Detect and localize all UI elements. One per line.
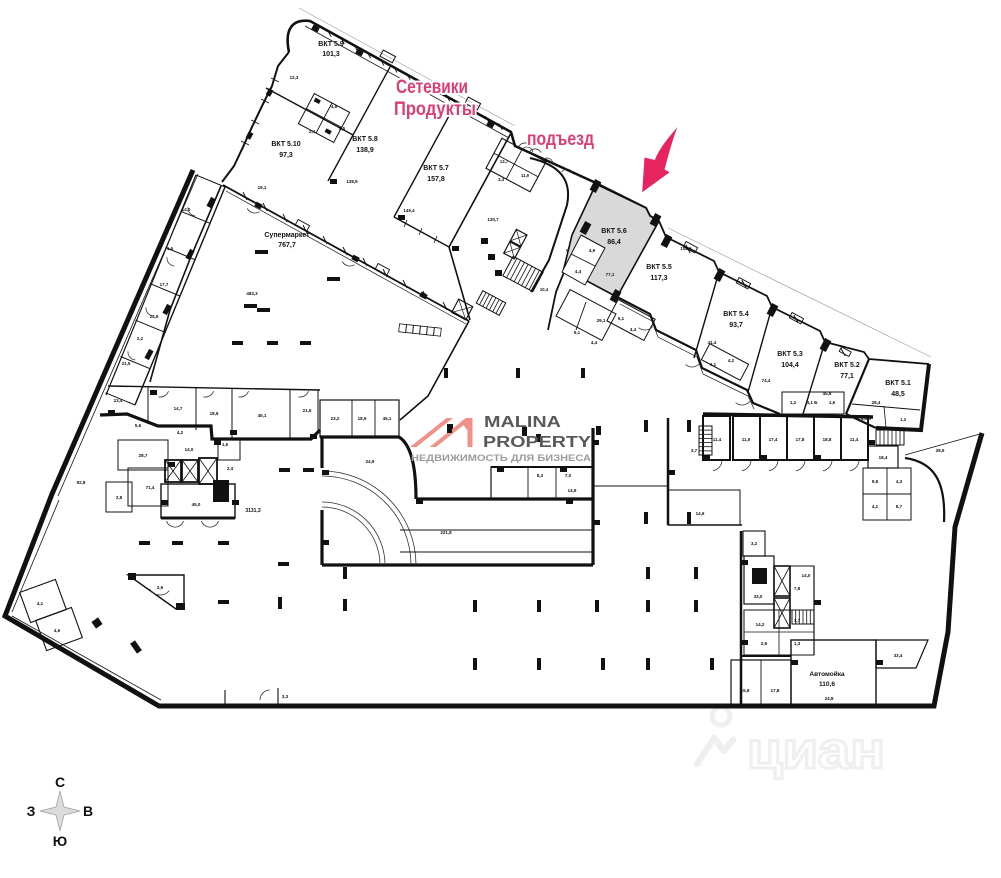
svg-text:97,3: 97,3: [279, 152, 293, 159]
svg-text:14,7: 14,7: [174, 406, 183, 411]
svg-text:17,7: 17,7: [160, 282, 169, 287]
svg-text:18,9: 18,9: [210, 411, 219, 416]
svg-text:18,4: 18,4: [879, 455, 888, 460]
svg-text:77,1: 77,1: [840, 373, 854, 380]
svg-text:33,4: 33,4: [894, 653, 903, 658]
svg-text:9,1: 9,1: [574, 330, 581, 335]
svg-text:221,8: 221,8: [440, 530, 452, 535]
svg-text:93,7: 93,7: [729, 322, 743, 329]
svg-text:5,1: 5,1: [618, 316, 625, 321]
svg-text:12,3: 12,3: [290, 75, 299, 80]
svg-text:23,4: 23,4: [114, 398, 123, 403]
svg-text:17,8: 17,8: [771, 688, 780, 693]
svg-text:11,4: 11,4: [850, 437, 859, 442]
svg-text:117,3: 117,3: [650, 275, 667, 282]
svg-text:3,7: 3,7: [691, 448, 698, 453]
svg-text:ВКТ 5.4: ВКТ 5.4: [723, 311, 749, 318]
svg-text:С: С: [55, 774, 65, 790]
svg-text:3,4: 3,4: [498, 177, 504, 182]
svg-text:138,9: 138,9: [356, 147, 374, 154]
svg-text:110,6: 110,6: [819, 681, 835, 688]
svg-text:4,1: 4,1: [37, 601, 44, 606]
svg-text:4,2: 4,2: [728, 358, 735, 363]
svg-text:21,5: 21,5: [122, 361, 131, 366]
svg-text:11,0: 11,0: [742, 437, 751, 442]
svg-text:2,9: 2,9: [157, 585, 164, 590]
svg-text:14,9: 14,9: [568, 488, 577, 493]
svg-text:ВКТ 5.9: ВКТ 5.9: [318, 41, 344, 48]
svg-text:92,8: 92,8: [77, 480, 86, 485]
svg-text:1,6: 1,6: [222, 442, 229, 447]
svg-text:8,3: 8,3: [537, 473, 544, 478]
svg-text:5,6: 5,6: [135, 423, 142, 428]
svg-text:4,5: 4,5: [339, 126, 346, 131]
svg-text:13,7: 13,7: [500, 159, 509, 164]
svg-text:З: З: [27, 803, 36, 819]
svg-text:29,1: 29,1: [597, 318, 606, 323]
svg-text:17,8: 17,8: [796, 437, 805, 442]
svg-text:45,0: 45,0: [192, 502, 201, 507]
svg-text:767,7: 767,7: [278, 242, 296, 249]
svg-text:28,7: 28,7: [139, 453, 148, 458]
svg-text:4,6: 4,6: [331, 104, 338, 109]
svg-text:28,4: 28,4: [872, 400, 881, 405]
svg-text:483,3: 483,3: [246, 291, 258, 296]
svg-text:4,9: 4,9: [589, 248, 596, 253]
svg-text:подъезд: подъезд: [527, 129, 594, 150]
svg-text:1,3: 1,3: [794, 641, 801, 646]
svg-text:ВКТ 5.10: ВКТ 5.10: [271, 141, 300, 148]
svg-text:циан: циан: [747, 722, 885, 780]
svg-text:Ю: Ю: [53, 833, 67, 849]
svg-text:4,6: 4,6: [54, 628, 61, 633]
svg-text:45,1: 45,1: [383, 416, 392, 421]
svg-text:74,4: 74,4: [762, 378, 771, 383]
svg-text:14,0: 14,0: [182, 207, 191, 212]
svg-text:18,9: 18,9: [358, 416, 367, 421]
svg-text:71,4: 71,4: [146, 485, 155, 490]
svg-text:157,8: 157,8: [427, 176, 445, 183]
svg-text:1,2: 1,2: [790, 400, 797, 405]
svg-text:4,4: 4,4: [591, 340, 598, 345]
svg-text:Сетевики: Сетевики: [396, 77, 468, 98]
svg-text:2,9: 2,9: [761, 641, 768, 646]
svg-text:11,4: 11,4: [713, 437, 722, 442]
svg-text:24,9: 24,9: [150, 314, 159, 319]
svg-text:ВКТ 5.6: ВКТ 5.6: [601, 228, 627, 235]
svg-text:MALINA: MALINA: [484, 414, 561, 431]
svg-text:3131,3: 3131,3: [245, 508, 261, 514]
svg-text:4,1 Б: 4,1 Б: [807, 400, 819, 405]
svg-text:Автомойка: Автомойка: [809, 670, 845, 678]
svg-text:24,9: 24,9: [825, 696, 834, 701]
svg-text:149,4: 149,4: [403, 208, 415, 213]
svg-text:14,0: 14,0: [185, 447, 194, 452]
svg-text:17,4: 17,4: [769, 437, 778, 442]
svg-text:86,4: 86,4: [607, 239, 621, 246]
svg-text:ВКТ 5.7: ВКТ 5.7: [423, 165, 449, 172]
svg-text:1,7: 1,7: [794, 618, 801, 623]
svg-text:1,3: 1,3: [900, 417, 906, 422]
svg-text:14,6: 14,6: [696, 511, 705, 516]
svg-text:24,9: 24,9: [366, 459, 375, 464]
svg-text:19,1: 19,1: [258, 185, 267, 190]
svg-text:3,3: 3,3: [282, 694, 289, 699]
svg-text:11,9: 11,9: [521, 173, 530, 178]
svg-text:ВКТ 5.8: ВКТ 5.8: [352, 136, 378, 143]
svg-text:14,2: 14,2: [756, 622, 765, 627]
svg-text:2,4: 2,4: [309, 129, 316, 134]
svg-text:4,3: 4,3: [896, 479, 903, 484]
svg-text:Продукты: Продукты: [394, 99, 476, 120]
svg-text:ВКТ 5.3: ВКТ 5.3: [777, 351, 803, 358]
svg-text:15,8: 15,8: [741, 688, 750, 693]
svg-text:130,7: 130,7: [487, 217, 499, 222]
svg-text:4,1: 4,1: [710, 362, 717, 367]
svg-text:3,2: 3,2: [751, 541, 758, 546]
svg-text:9,8: 9,8: [872, 479, 879, 484]
svg-text:101,3: 101,3: [322, 51, 340, 58]
svg-text:45,1: 45,1: [258, 413, 267, 418]
svg-text:Супермаркет: Супермаркет: [264, 232, 310, 239]
svg-text:28,5: 28,5: [936, 448, 945, 453]
svg-text:PROPERTY: PROPERTY: [483, 434, 592, 451]
svg-text:ВКТ 5.5: ВКТ 5.5: [646, 264, 672, 271]
svg-text:21,5: 21,5: [303, 408, 312, 413]
svg-text:В: В: [83, 803, 93, 819]
svg-text:4,2: 4,2: [177, 430, 184, 435]
svg-text:7,8: 7,8: [794, 586, 801, 591]
svg-text:2,8: 2,8: [116, 495, 123, 500]
svg-text:2,4: 2,4: [227, 466, 234, 471]
svg-text:4,1: 4,1: [872, 504, 879, 509]
svg-text:НЕДВИЖИМОСТЬ ДЛЯ БИЗНЕСА: НЕДВИЖИМОСТЬ ДЛЯ БИЗНЕСА: [411, 453, 591, 463]
svg-text:1,6: 1,6: [829, 400, 836, 405]
svg-text:138,9: 138,9: [346, 179, 358, 184]
svg-text:2,2: 2,2: [137, 336, 144, 341]
svg-text:4,4: 4,4: [630, 327, 637, 332]
svg-text:ВКТ 5.1: ВКТ 5.1: [885, 380, 911, 387]
svg-text:10,4: 10,4: [540, 287, 549, 292]
svg-text:1,6: 1,6: [167, 246, 174, 251]
svg-text:104,4: 104,4: [781, 362, 799, 369]
svg-text:7,0: 7,0: [565, 473, 572, 478]
svg-text:77,1: 77,1: [606, 272, 615, 277]
svg-text:14,0: 14,0: [802, 573, 811, 578]
svg-text:ВКТ 5.2: ВКТ 5.2: [834, 362, 860, 369]
svg-text:18,8: 18,8: [823, 437, 832, 442]
svg-text:33,0: 33,0: [754, 594, 763, 599]
svg-text:23,2: 23,2: [331, 416, 340, 421]
svg-text:4,4: 4,4: [575, 269, 582, 274]
svg-text:8,7: 8,7: [896, 504, 903, 509]
svg-text:48,5: 48,5: [891, 391, 905, 398]
